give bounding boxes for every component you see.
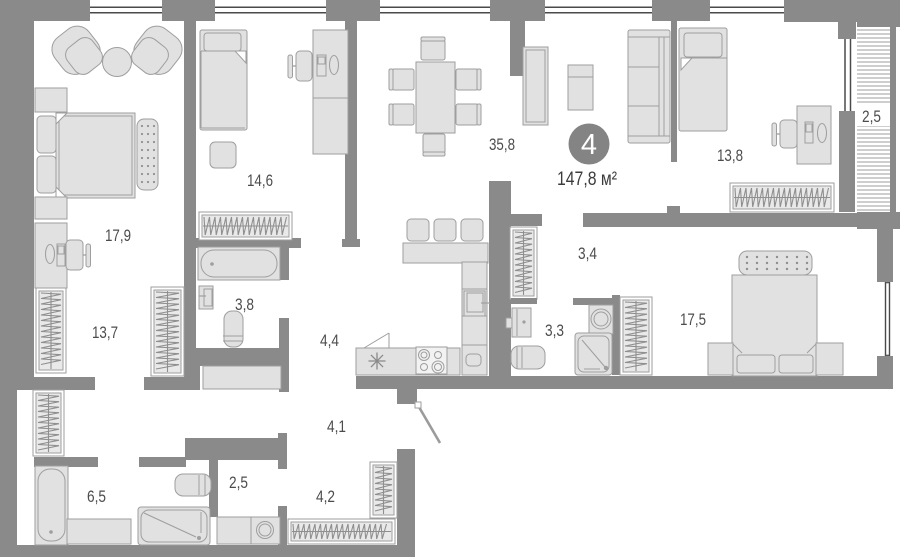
svg-text:13,7: 13,7: [92, 324, 118, 342]
svg-text:3,8: 3,8: [235, 296, 254, 314]
svg-text:4: 4: [581, 129, 597, 161]
svg-text:4,4: 4,4: [320, 332, 339, 350]
svg-text:4,1: 4,1: [327, 418, 346, 436]
svg-text:147,8 м²: 147,8 м²: [557, 169, 617, 190]
svg-text:13,8: 13,8: [717, 147, 743, 165]
svg-text:2,5: 2,5: [229, 474, 248, 492]
svg-text:14,6: 14,6: [247, 172, 273, 190]
svg-text:2,5: 2,5: [862, 108, 881, 126]
svg-text:17,5: 17,5: [680, 311, 706, 329]
svg-text:6,5: 6,5: [87, 488, 106, 506]
svg-text:35,8: 35,8: [489, 136, 515, 154]
svg-text:4,2: 4,2: [316, 488, 335, 506]
svg-text:3,4: 3,4: [578, 245, 597, 263]
svg-text:3,3: 3,3: [545, 322, 564, 340]
svg-text:17,9: 17,9: [105, 227, 131, 245]
